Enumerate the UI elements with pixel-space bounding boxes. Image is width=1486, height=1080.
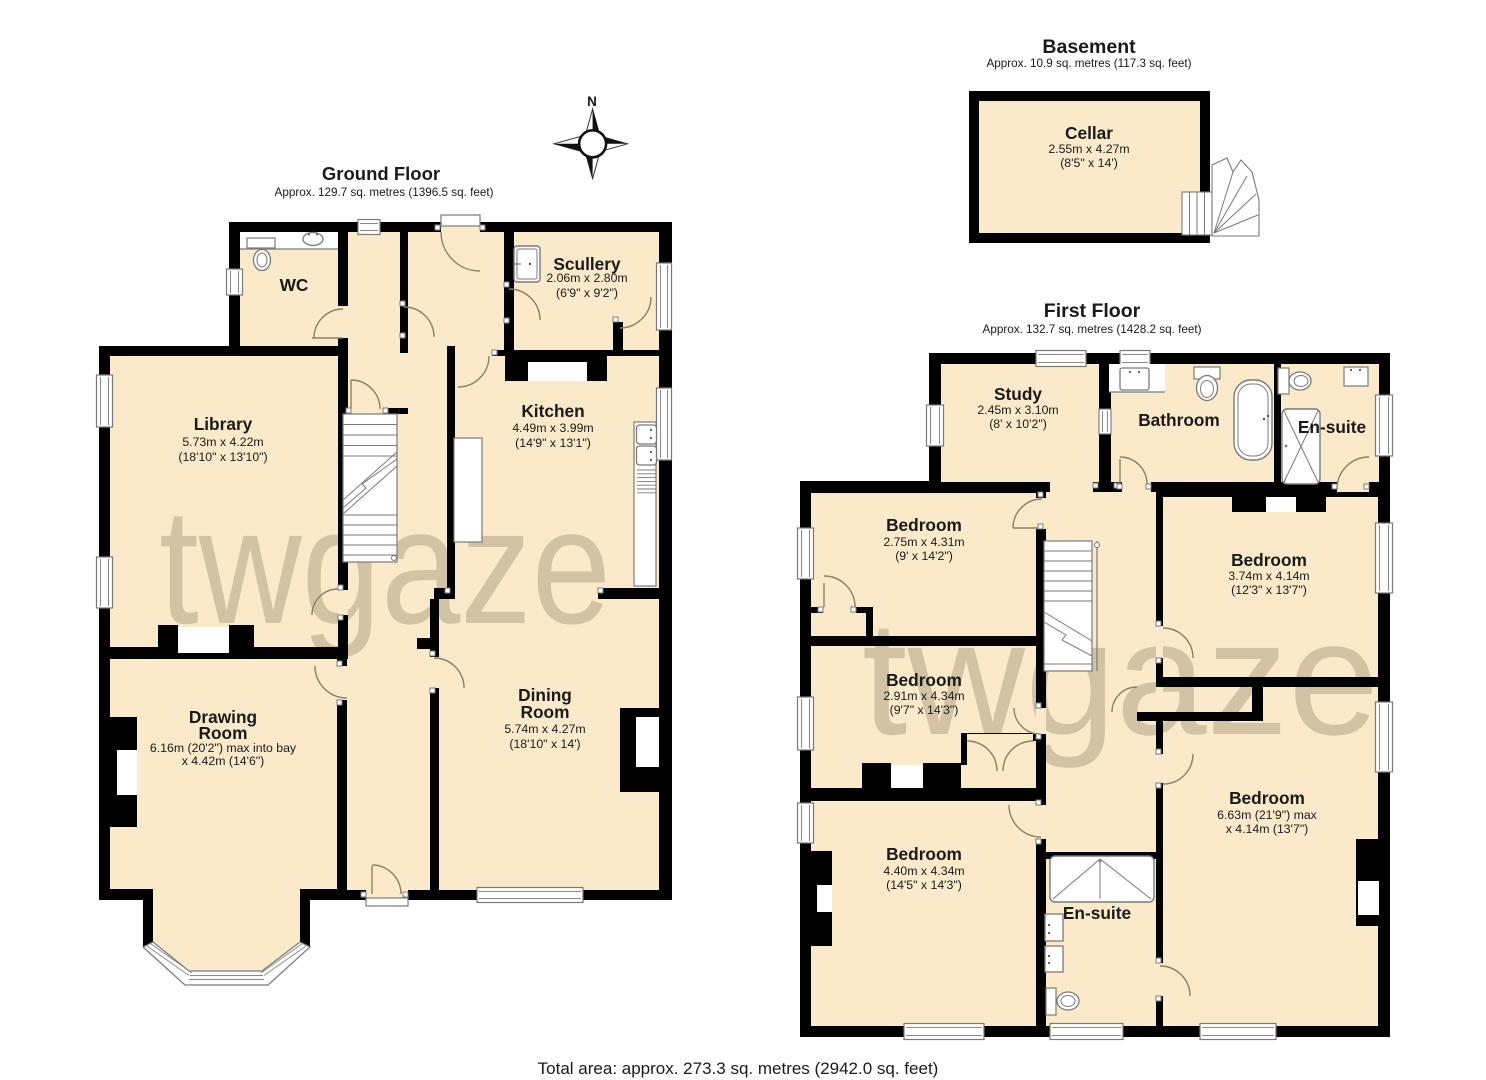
svg-text:4.49m x 3.99m: 4.49m x 3.99m	[512, 421, 593, 435]
svg-text:WC: WC	[280, 275, 309, 295]
svg-text:Room: Room	[521, 702, 570, 722]
svg-text:En-suite: En-suite	[1063, 903, 1132, 923]
svg-text:Kitchen: Kitchen	[521, 401, 584, 421]
svg-text:(14'9" x 13'1"): (14'9" x 13'1")	[515, 436, 591, 450]
svg-text:Approx. 129.7 sq. metres (1396: Approx. 129.7 sq. metres (1396.5 sq. fee…	[275, 186, 494, 199]
svg-text:6.63m (21'9") max: 6.63m (21'9") max	[1217, 808, 1318, 822]
svg-text:(9' x 14'2"): (9' x 14'2")	[895, 549, 953, 563]
svg-text:2.55m x 4.27m: 2.55m x 4.27m	[1048, 142, 1129, 156]
svg-text:Study: Study	[994, 384, 1042, 404]
svg-text:Room: Room	[199, 723, 248, 743]
svg-text:2.06m x 2.80m: 2.06m x 2.80m	[546, 271, 627, 285]
svg-text:(12'3" x 13'7"): (12'3" x 13'7")	[1231, 583, 1307, 597]
svg-text:5.73m x 4.22m: 5.73m x 4.22m	[182, 435, 263, 449]
svg-text:First Floor: First Floor	[1044, 300, 1141, 322]
svg-text:(9'7" x 14'3"): (9'7" x 14'3")	[890, 703, 959, 717]
svg-text:Cellar: Cellar	[1065, 123, 1113, 143]
svg-text:4.40m x 4.34m: 4.40m x 4.34m	[883, 864, 964, 878]
svg-text:Bedroom: Bedroom	[886, 844, 962, 864]
svg-text:2.45m x 3.10m: 2.45m x 3.10m	[977, 403, 1058, 417]
svg-text:Bathroom: Bathroom	[1138, 410, 1220, 430]
svg-text:Bedroom: Bedroom	[886, 515, 962, 535]
svg-text:2.75m x 4.31m: 2.75m x 4.31m	[883, 535, 964, 549]
svg-text:Approx. 10.9 sq. metres (117.3: Approx. 10.9 sq. metres (117.3 sq. feet)	[986, 57, 1191, 70]
svg-text:6.16m (20'2") max into bay: 6.16m (20'2") max into bay	[150, 741, 297, 755]
svg-text:(18'10" x 14'): (18'10" x 14')	[509, 737, 580, 751]
svg-text:(8' x 10'2"): (8' x 10'2")	[989, 417, 1047, 431]
svg-text:(6'9" x 9'2"): (6'9" x 9'2")	[556, 286, 618, 300]
svg-text:(18'10" x 13'10"): (18'10" x 13'10")	[178, 450, 267, 464]
svg-text:Bedroom: Bedroom	[886, 670, 962, 690]
svg-text:(8'5" x 14'): (8'5" x 14')	[1060, 156, 1118, 170]
svg-text:Ground Floor: Ground Floor	[322, 163, 440, 184]
svg-text:3.74m x 4.14m: 3.74m x 4.14m	[1228, 569, 1309, 583]
svg-text:Approx. 132.7 sq. metres (1428: Approx. 132.7 sq. metres (1428.2 sq. fee…	[983, 323, 1202, 336]
svg-text:Library: Library	[194, 414, 253, 434]
svg-text:Total area: approx. 273.3 sq.: Total area: approx. 273.3 sq. metres (29…	[538, 1059, 939, 1078]
svg-text:5.74m x 4.27m: 5.74m x 4.27m	[504, 722, 585, 736]
svg-text:Bedroom: Bedroom	[1229, 788, 1305, 808]
svg-text:2.91m x 4.34m: 2.91m x 4.34m	[883, 689, 964, 703]
svg-text:Basement: Basement	[1042, 36, 1136, 58]
svg-text:En-suite: En-suite	[1298, 417, 1367, 437]
svg-text:(14'5" x 14'3"): (14'5" x 14'3")	[886, 878, 962, 892]
svg-text:x 4.42m (14'6"): x 4.42m (14'6")	[182, 754, 265, 768]
svg-text:N: N	[587, 94, 597, 109]
svg-text:Bedroom: Bedroom	[1231, 550, 1307, 570]
svg-text:x 4.14m (13'7"): x 4.14m (13'7")	[1226, 822, 1309, 836]
